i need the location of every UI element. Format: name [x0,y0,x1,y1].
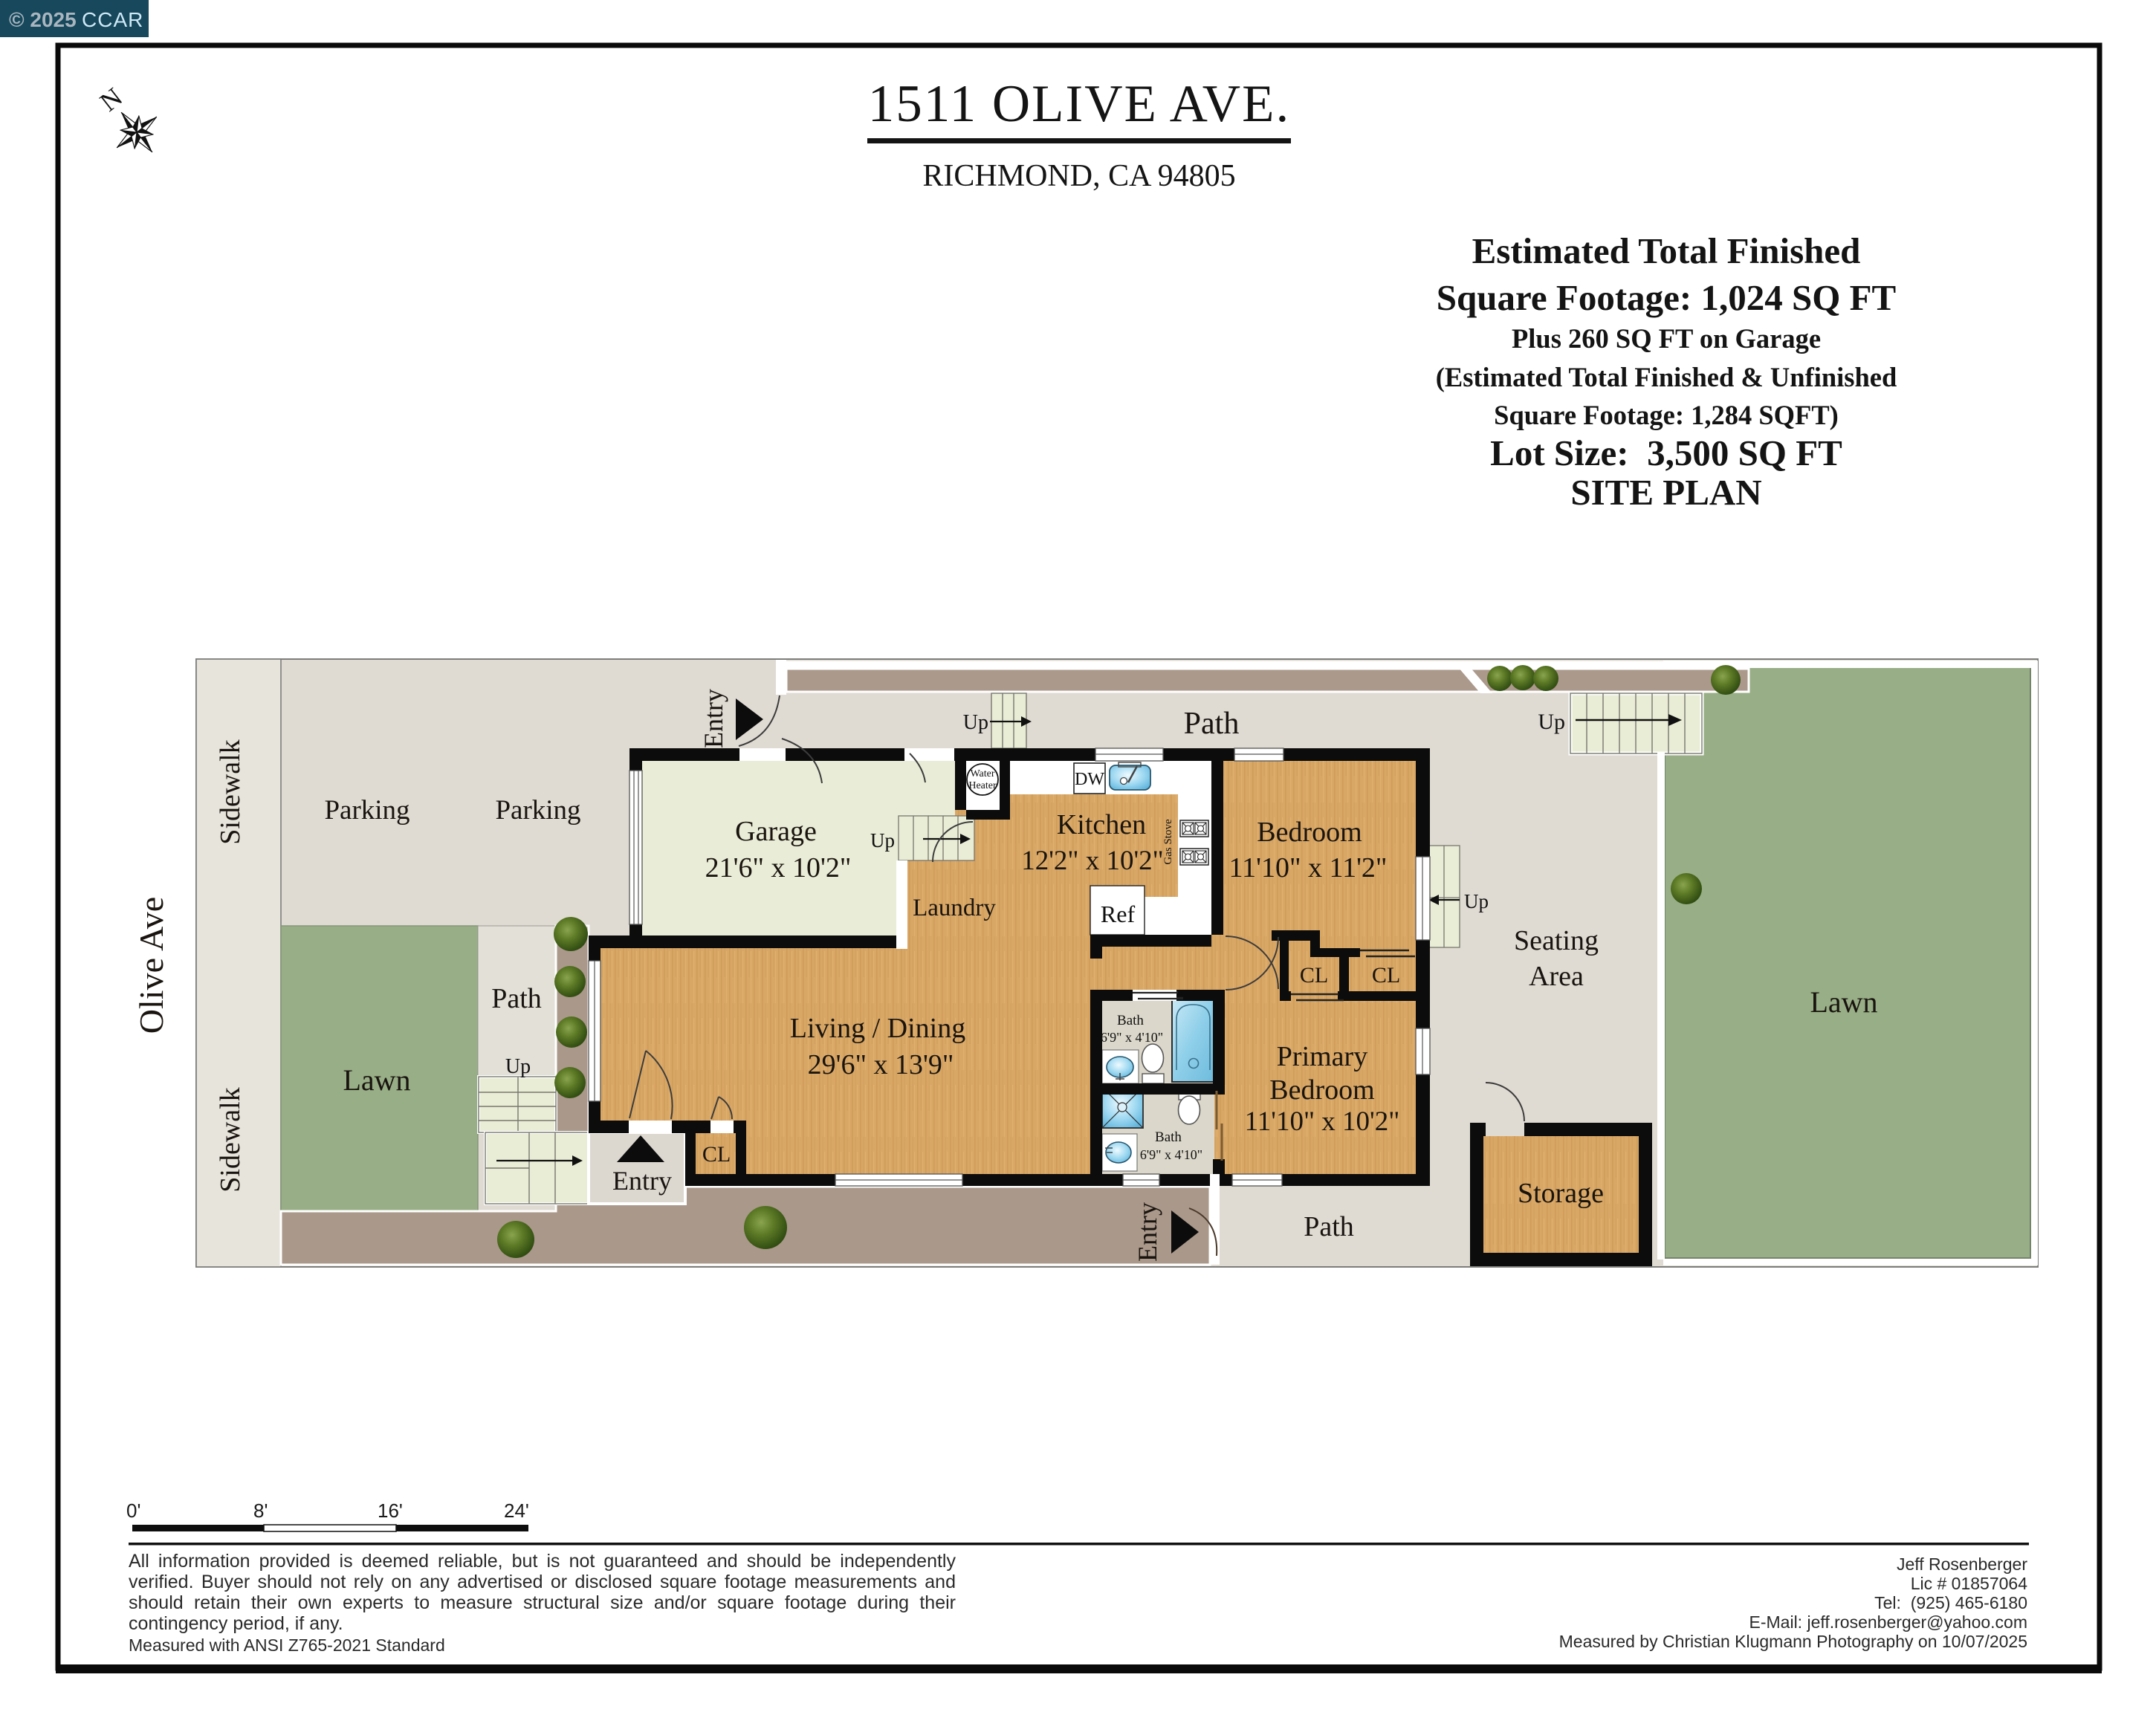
svg-text:8': 8' [253,1499,268,1522]
svg-text:11'10" x 10'2": 11'10" x 10'2" [1245,1106,1400,1137]
svg-text:Gas Stove: Gas Stove [1162,819,1174,865]
svg-text:Kitchen: Kitchen [1057,809,1146,840]
svg-text:Bedroom: Bedroom [1269,1074,1374,1106]
svg-text:Path: Path [1304,1211,1354,1242]
svg-text:Up: Up [1464,890,1489,912]
svg-text:Ref: Ref [1101,901,1136,927]
svg-text:Heater: Heater [968,780,997,791]
svg-text:Entry: Entry [1133,1202,1162,1262]
svg-text:Lot Size: 3,500 SQ FT: Lot Size: 3,500 SQ FT [1490,432,1842,473]
svg-text:Water: Water [970,768,994,779]
svg-text:Plus 260 SQ FT on Garage: Plus 260 SQ FT on Garage [1512,323,1821,354]
svg-text:Olive Ave: Olive Ave [132,897,170,1034]
svg-text:Parking: Parking [495,795,580,826]
svg-text:Sidewalk: Sidewalk [215,739,246,844]
svg-text:Bedroom: Bedroom [1257,817,1362,848]
svg-text:SITE PLAN: SITE PLAN [1570,472,1761,513]
svg-text:Sidewalk: Sidewalk [215,1087,246,1192]
svg-text:Bath: Bath [1117,1013,1144,1028]
svg-text:CL: CL [702,1142,731,1167]
svg-text:Primary: Primary [1277,1041,1367,1072]
svg-text:Jeff Rosenberger: Jeff Rosenberger [1897,1554,2027,1574]
svg-text:6'9" x 4'10": 6'9" x 4'10" [1101,1030,1163,1045]
svg-text:Up: Up [505,1055,531,1078]
svg-text:16': 16' [378,1499,403,1522]
svg-text:0': 0' [126,1499,140,1522]
svg-text:11'10" x 11'2": 11'10" x 11'2" [1229,852,1388,883]
svg-text:12'2" x 10'2": 12'2" x 10'2" [1021,846,1164,876]
svg-text:Laundry: Laundry [913,895,996,921]
svg-text:Seating: Seating [1514,925,1599,956]
svg-text:Up: Up [1538,710,1565,734]
svg-text:N: N [94,82,128,117]
svg-text:Estimated Total Finished: Estimated Total Finished [1472,230,1861,271]
svg-text:Tel: (925) 465-6180: Tel: (925) 465-6180 [1874,1593,2027,1612]
svg-text:Measured by Christian Klugmann: Measured by Christian Klugmann Photograp… [1559,1632,2027,1651]
svg-text:Path: Path [1184,707,1240,741]
svg-text:24': 24' [504,1499,529,1522]
svg-text:RICHMOND, CA 94805: RICHMOND, CA 94805 [922,159,1235,193]
svg-text:CCAR: CCAR [82,8,143,31]
svg-text:Lawn: Lawn [1810,985,1877,1019]
svg-text:CL: CL [1372,963,1400,988]
svg-text:Up: Up [870,829,895,852]
svg-text:Garage: Garage [735,816,817,847]
svg-text:Parking: Parking [324,795,409,826]
svg-text:CL: CL [1300,963,1328,988]
svg-text:Lic # 01857064: Lic # 01857064 [1911,1574,2028,1593]
svg-text:Storage: Storage [1518,1178,1604,1209]
svg-text:E-Mail: jeff.rosenberger@yahoo: E-Mail: jeff.rosenberger@yahoo.com [1749,1612,2027,1632]
svg-text:1511 OLIVE AVE.: 1511 OLIVE AVE. [868,75,1290,133]
svg-text:Lawn: Lawn [343,1063,410,1097]
svg-text:Up: Up [963,711,988,734]
svg-text:Path: Path [491,983,542,1014]
svg-text:29'6" x 13'9": 29'6" x 13'9" [808,1049,954,1080]
svg-text:Square Footage: 1,284 SQFT): Square Footage: 1,284 SQFT) [1494,400,1839,430]
svg-text:Square Footage: 1,024 SQ FT: Square Footage: 1,024 SQ FT [1437,277,1896,318]
svg-text:Area: Area [1529,961,1584,992]
svg-text:Entry: Entry [612,1166,672,1196]
svg-text:© 2025: © 2025 [9,8,77,31]
svg-text:DW: DW [1075,770,1104,789]
svg-text:Bath: Bath [1155,1129,1182,1145]
svg-text:21'6" x 10'2": 21'6" x 10'2" [705,852,852,883]
svg-text:Entry: Entry [699,689,728,748]
svg-text:Living / Dining: Living / Dining [790,1013,965,1044]
svg-text:(Estimated Total Finished & Un: (Estimated Total Finished & Unfinished [1436,362,1897,392]
svg-text:6'9" x 4'10": 6'9" x 4'10" [1140,1147,1202,1162]
